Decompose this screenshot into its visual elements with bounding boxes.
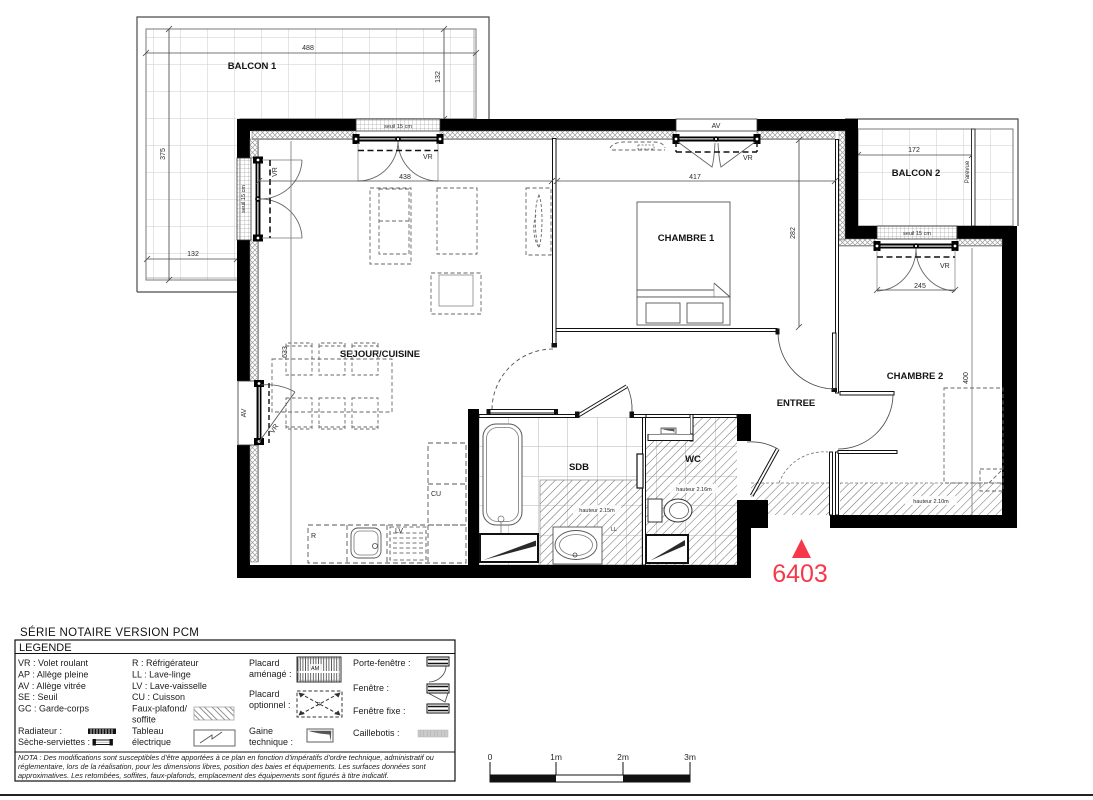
svg-text:AV: AV xyxy=(241,408,248,417)
svg-text:AP : Allège pleine: AP : Allège pleine xyxy=(18,670,88,680)
svg-text:AV: AV xyxy=(712,123,721,130)
svg-text:VR: VR xyxy=(423,154,433,161)
svg-text:optionnel :: optionnel : xyxy=(249,700,291,710)
svg-text:132: 132 xyxy=(435,71,442,83)
svg-text:CHAMBRE 1: CHAMBRE 1 xyxy=(658,233,715,244)
svg-text:0: 0 xyxy=(488,752,493,762)
svg-text:1m: 1m xyxy=(550,752,562,762)
svg-text:282: 282 xyxy=(790,227,797,239)
svg-text:CHAMBRE 2: CHAMBRE 2 xyxy=(887,371,943,382)
svg-text:3m: 3m xyxy=(684,752,696,762)
svg-text:VR: VR xyxy=(272,167,279,177)
svg-text:AM: AM xyxy=(311,666,320,672)
svg-text:LV : Lave-vaisselle: LV : Lave-vaisselle xyxy=(132,681,207,691)
svg-text:417: 417 xyxy=(689,174,701,181)
svg-text:WC: WC xyxy=(685,454,701,465)
svg-text:SÉRIE NOTAIRE VERSION PCM: SÉRIE NOTAIRE VERSION PCM xyxy=(20,626,199,639)
svg-text:SE : Seuil: SE : Seuil xyxy=(18,692,58,702)
svg-text:VR: VR xyxy=(940,263,950,270)
svg-text:LV: LV xyxy=(395,528,403,535)
svg-text:Radiateur :: Radiateur : xyxy=(18,726,62,736)
svg-text:hauteur 2.10m: hauteur 2.10m xyxy=(913,499,949,505)
svg-text:VR: VR xyxy=(743,155,753,162)
svg-text:Placard: Placard xyxy=(249,658,280,668)
svg-text:Porte-fenêtre :: Porte-fenêtre : xyxy=(353,658,411,668)
svg-text:Placard: Placard xyxy=(249,689,280,699)
svg-text:GC : Garde-corps: GC : Garde-corps xyxy=(18,704,90,714)
svg-text:hauteur 2.16m: hauteur 2.16m xyxy=(676,487,712,493)
svg-text:R: R xyxy=(317,702,321,708)
svg-text:400: 400 xyxy=(963,372,970,384)
svg-text:Caillebotis :: Caillebotis : xyxy=(353,728,400,738)
svg-text:132: 132 xyxy=(187,251,199,258)
svg-text:LL : Lave-linge: LL : Lave-linge xyxy=(132,670,191,680)
svg-text:Fenêtre :: Fenêtre : xyxy=(353,683,389,693)
svg-text:VR : Volet roulant: VR : Volet roulant xyxy=(18,658,89,668)
svg-text:seuil 15 cm: seuil 15 cm xyxy=(241,185,247,213)
svg-text:633: 633 xyxy=(282,346,289,358)
svg-text:LL: LL xyxy=(611,527,617,533)
svg-text:172: 172 xyxy=(908,147,920,154)
svg-text:électrique: électrique xyxy=(132,737,171,747)
svg-text:approximatives. Les retombées,: approximatives. Les retombées, soffites,… xyxy=(18,771,389,780)
svg-text:Fenêtre fixe :: Fenêtre fixe : xyxy=(353,706,406,716)
svg-text:488: 488 xyxy=(302,45,314,52)
svg-text:aménagé :: aménagé : xyxy=(249,669,292,679)
svg-text:réglementaire, lors de la réal: réglementaire, lors de la réalisation, p… xyxy=(18,762,427,771)
svg-text:R : Réfrigérateur: R : Réfrigérateur xyxy=(132,658,199,668)
svg-text:Gaine: Gaine xyxy=(249,726,273,736)
svg-text:6403: 6403 xyxy=(772,560,828,588)
svg-text:BALCON 2: BALCON 2 xyxy=(892,168,941,179)
svg-text:technique :: technique : xyxy=(249,737,293,747)
svg-text:375: 375 xyxy=(160,148,167,160)
svg-text:CU: CU xyxy=(431,491,441,498)
svg-text:2m: 2m xyxy=(617,752,629,762)
svg-text:Tableau: Tableau xyxy=(132,726,164,736)
svg-text:CU : Cuisson: CU : Cuisson xyxy=(132,692,185,702)
svg-text:soffite: soffite xyxy=(132,715,156,725)
svg-text:hauteur 2.15m: hauteur 2.15m xyxy=(579,508,615,514)
svg-text:Parevue: Parevue xyxy=(965,160,971,183)
svg-text:AV : Allège vitrée: AV : Allège vitrée xyxy=(18,681,86,691)
svg-text:BALCON 1: BALCON 1 xyxy=(228,61,277,72)
svg-text:438: 438 xyxy=(399,174,411,181)
svg-text:seuil 15 cm: seuil 15 cm xyxy=(903,231,931,237)
svg-text:ENTREE: ENTREE xyxy=(777,398,816,409)
svg-text:seuil 15 cm: seuil 15 cm xyxy=(384,124,412,130)
svg-text:Sèche-serviettes :: Sèche-serviettes : xyxy=(18,737,90,747)
svg-text:Faux-plafond/: Faux-plafond/ xyxy=(132,704,188,714)
svg-text:LEGENDE: LEGENDE xyxy=(19,642,72,654)
svg-text:NOTA : Des modifications sont: NOTA : Des modifications sont susceptibl… xyxy=(18,753,434,762)
svg-text:245: 245 xyxy=(914,283,926,290)
svg-text:R: R xyxy=(311,533,316,540)
svg-text:SDB: SDB xyxy=(569,462,589,473)
